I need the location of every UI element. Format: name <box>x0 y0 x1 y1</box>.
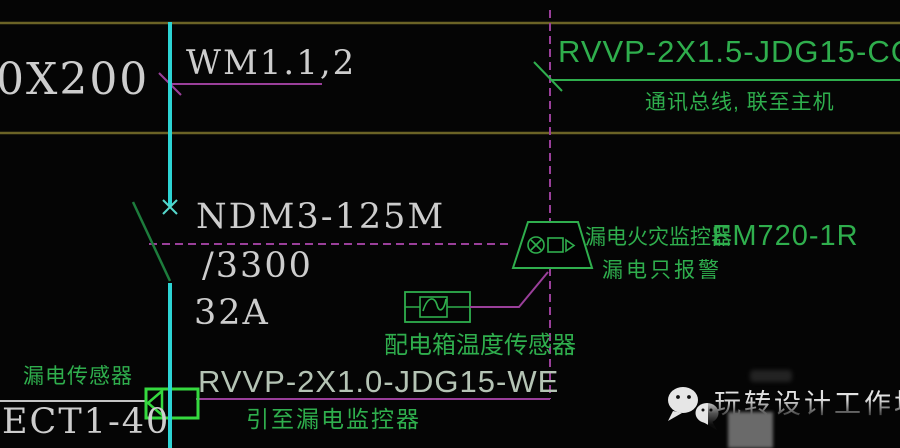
feeder-circuit-label: WM1.1,2 <box>186 46 356 80</box>
comm-cable-code: RVVP-2X1.5-JDG15-CC <box>558 36 900 67</box>
cad-electrical-diagram: 0X200 WM1.1,2 RVVP-2X1.5-JDG15-CC 通讯总线, … <box>0 0 900 448</box>
monitor-name-label: 漏电火灾监控器 <box>585 227 732 248</box>
breaker-model-label: NDM3-125M <box>196 200 445 235</box>
breaker-rating-label: 32A <box>194 296 270 331</box>
leakage-cable-note: 引至漏电监控器 <box>246 408 421 431</box>
bus-size-label: 0X200 <box>0 58 149 102</box>
comm-cable-note: 通讯总线, 联至主机 <box>645 92 835 113</box>
watermark-smudge <box>750 370 792 382</box>
monitor-note-label: 漏电只报警 <box>602 260 722 281</box>
leakage-sensor-name-label: 漏电传感器 <box>23 366 133 387</box>
temp-sensor-name-label: 配电箱温度传感器 <box>384 334 576 358</box>
monitor-model-label: EM720-1R <box>712 222 859 251</box>
leakage-fire-monitor-symbol <box>513 222 592 268</box>
temperature-sensor-symbol <box>405 292 470 322</box>
watermark-grey-box <box>728 412 773 448</box>
breaker-trip-label: /3300 <box>202 249 313 284</box>
leakage-cable-code: RVVP-2X1.0-JDG15-WE <box>198 366 559 397</box>
leakage-sensor-model-label: ECT1-40 <box>2 405 170 440</box>
temp-sensor-connector <box>470 272 548 307</box>
